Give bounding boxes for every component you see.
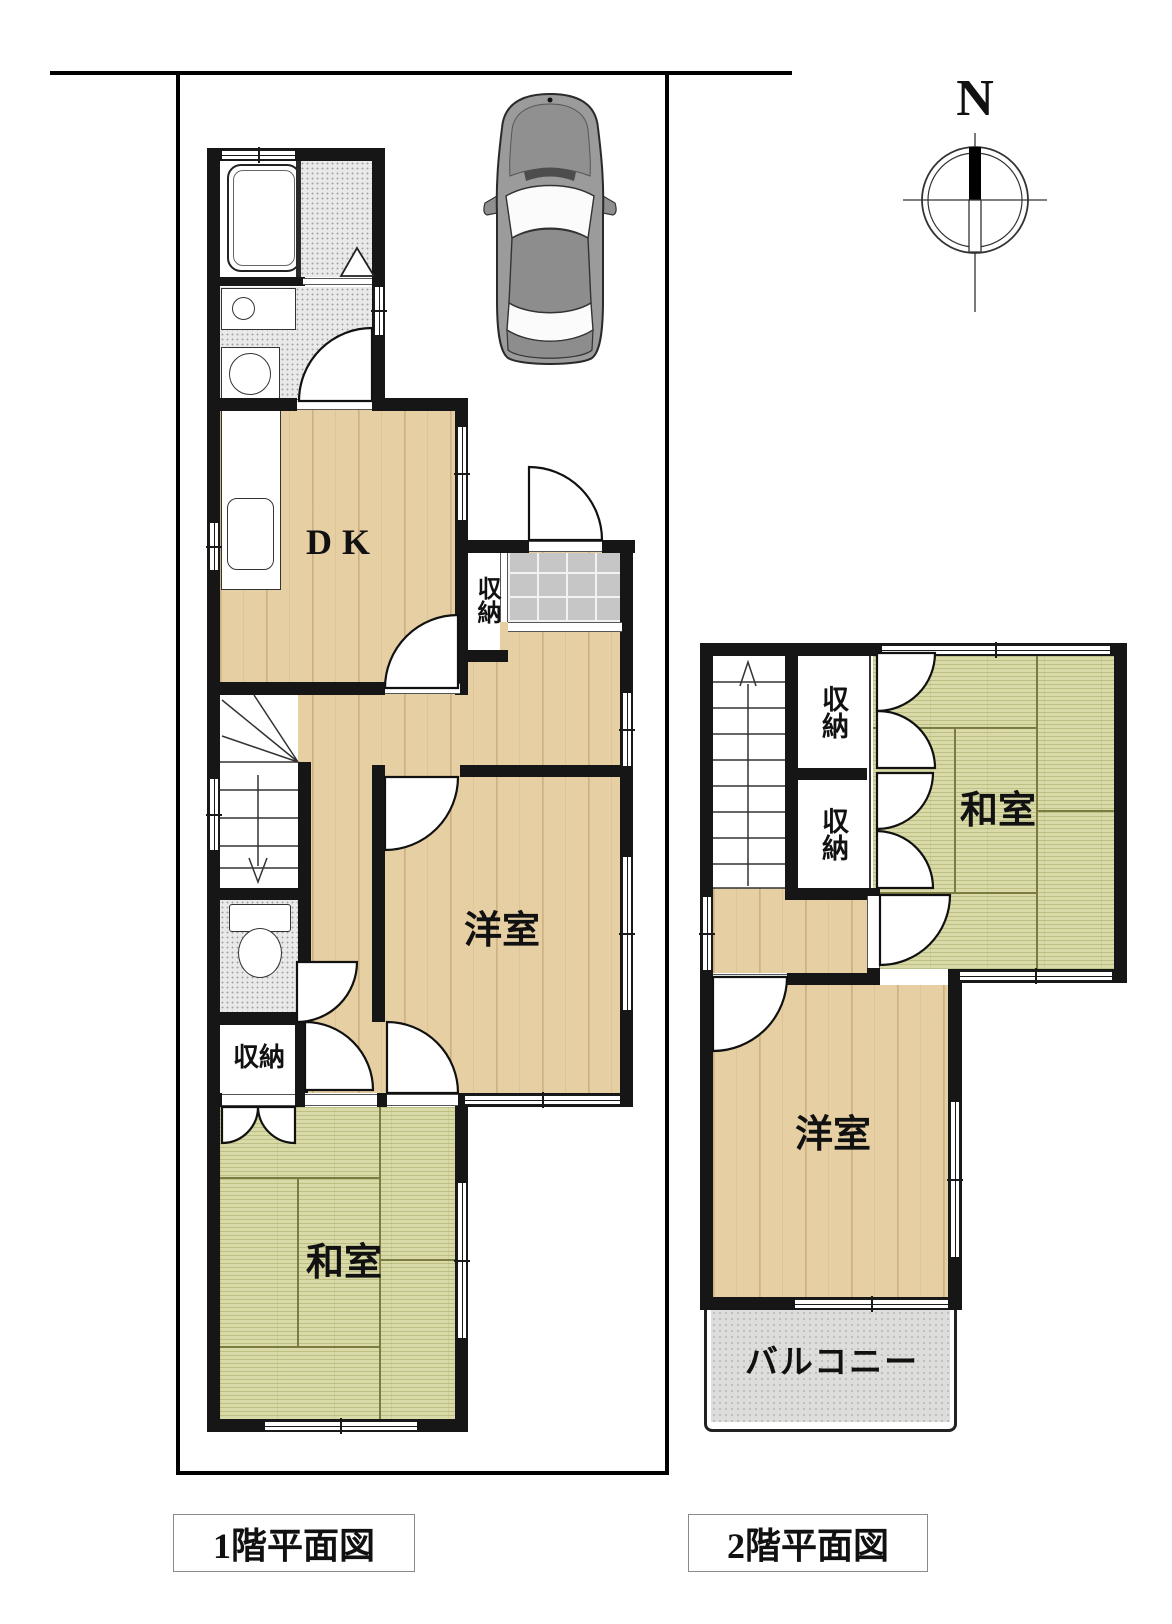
door-arc-western-to-japanese-room — [387, 1022, 458, 1093]
door-arc-western-room-2f — [713, 977, 787, 1051]
closet-door-arc — [877, 773, 933, 829]
room-label-balcony: バルコニー — [722, 1346, 942, 1381]
room-label-dk: DK — [288, 524, 398, 562]
floor2-caption: 2階平面図 — [727, 1517, 889, 1569]
door-arc-hall-to-japanese-room — [305, 1022, 373, 1090]
door-arc-dk — [385, 615, 458, 688]
door-arc-toilet — [297, 962, 357, 1022]
room-label-storage-entry: 収納 — [470, 552, 498, 648]
floor2-caption-box: 2階平面図 — [688, 1514, 928, 1572]
closet-door-arc — [258, 1107, 295, 1143]
car-icon — [484, 94, 616, 364]
room-label-storage-hall: 収納 — [222, 1044, 296, 1071]
compass-icon — [903, 133, 1047, 312]
floor-plan-canvas: N DK 収納 洋室 収納 和室 収納 収納 和室 洋室 バルコニー 1階平面図… — [0, 0, 1172, 1624]
door-arc-japanese-room-2f — [880, 895, 950, 965]
closet-door-arc — [877, 831, 933, 888]
room-label-storage-upper-2f: 収納 — [817, 662, 847, 762]
room-label-storage-lower-2f: 収納 — [817, 786, 847, 882]
floor1-caption: 1階平面図 — [213, 1517, 375, 1569]
door-arc-washroom — [299, 328, 372, 401]
stairs-up-2f — [713, 662, 785, 888]
room-label-japanese-room-1f: 和室 — [292, 1244, 396, 1284]
room-label-western-room-2f: 洋室 — [781, 1116, 885, 1156]
bath-door-icon — [341, 248, 374, 276]
stairs-down-1f — [220, 695, 298, 882]
floor1-caption-box: 1階平面図 — [173, 1514, 415, 1572]
closet-door-arc — [877, 653, 935, 711]
room-label-japanese-room-2f: 和室 — [946, 792, 1050, 832]
door-arc-front-door — [529, 467, 602, 540]
closet-door-arc — [877, 711, 935, 768]
compass-north-label: N — [948, 72, 1002, 127]
door-arc-western-room-1f — [385, 777, 458, 850]
room-label-western-room-1f: 洋室 — [450, 912, 554, 952]
closet-door-arc — [222, 1107, 258, 1143]
